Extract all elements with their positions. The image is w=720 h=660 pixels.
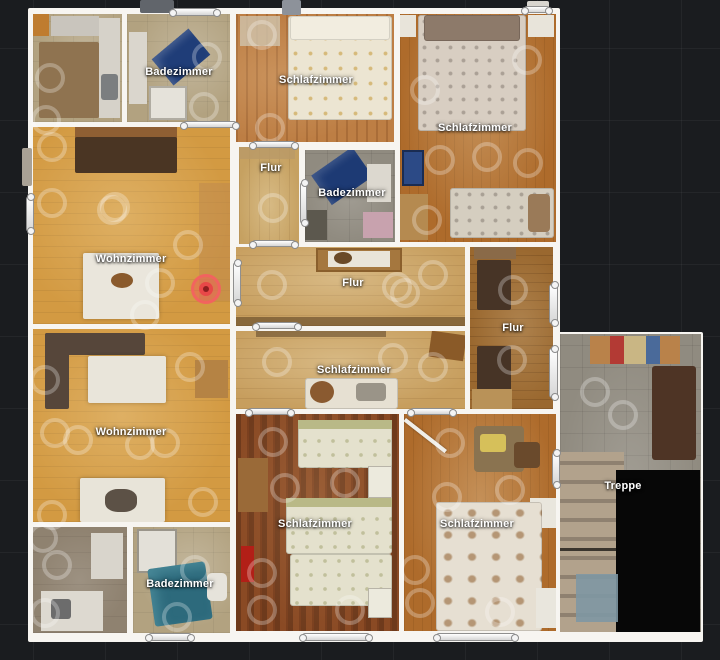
- sweep-point[interactable]: [28, 523, 58, 553]
- sweep-point[interactable]: [130, 300, 160, 330]
- sweep-point[interactable]: [258, 427, 288, 457]
- sweep-point[interactable]: [188, 487, 218, 517]
- nightstand: [368, 588, 392, 618]
- door-hinge: [249, 241, 257, 249]
- sweep-point[interactable]: [390, 278, 420, 308]
- sweep-point[interactable]: [97, 195, 127, 225]
- door-hinge: [291, 241, 299, 249]
- nightstand: [400, 15, 416, 37]
- door-marker: [410, 408, 454, 415]
- current-position-marker: [191, 274, 221, 304]
- room-label: Badezimmer: [146, 578, 213, 590]
- door-marker: [549, 348, 558, 398]
- sweep-point[interactable]: [162, 602, 192, 632]
- sweep-point[interactable]: [175, 352, 205, 382]
- door-marker: [248, 408, 292, 415]
- sweep-point[interactable]: [425, 145, 455, 175]
- sweep-point[interactable]: [37, 132, 67, 162]
- clutter: [472, 389, 512, 409]
- stair-landing-edge: [560, 548, 624, 551]
- sweep-point[interactable]: [30, 598, 60, 628]
- door-marker: [436, 633, 516, 641]
- door-hinge: [299, 634, 307, 642]
- sweep-point[interactable]: [270, 473, 300, 503]
- stairwell-void: [616, 470, 700, 632]
- cushion: [480, 434, 506, 452]
- wardrobe: [238, 458, 268, 512]
- sweep-point[interactable]: [31, 105, 61, 135]
- current-position-marker-core: [203, 286, 209, 292]
- door-hinge: [553, 481, 561, 489]
- pillow: [310, 381, 334, 403]
- sink: [101, 74, 118, 100]
- clutter: [256, 331, 386, 337]
- clutter: [474, 247, 516, 259]
- room-label: Badezimmer: [318, 187, 385, 199]
- door-hinge: [551, 281, 559, 289]
- door-hinge: [511, 634, 519, 642]
- door-marker: [524, 6, 550, 13]
- sweep-point[interactable]: [255, 113, 285, 143]
- sweep-point[interactable]: [262, 347, 292, 377]
- sweep-point[interactable]: [580, 377, 610, 407]
- door-hinge: [553, 449, 561, 457]
- sweep-point[interactable]: [410, 75, 440, 105]
- door-marker: [300, 182, 307, 224]
- door-hinge: [365, 634, 373, 642]
- sweep-point[interactable]: [512, 45, 542, 75]
- sweep-point[interactable]: [247, 20, 277, 50]
- nightstand: [368, 466, 392, 498]
- door-hinge: [213, 9, 221, 17]
- door-hinge: [232, 122, 240, 130]
- cabinet: [33, 14, 49, 36]
- door-hinge: [249, 142, 257, 150]
- room-label: Treppe: [604, 480, 641, 492]
- sweep-point[interactable]: [497, 345, 527, 375]
- door-hinge: [407, 409, 415, 417]
- door-hinge: [291, 142, 299, 150]
- table-item: [111, 273, 133, 288]
- chair: [402, 150, 424, 186]
- room-label: Schlafzimmer: [317, 364, 391, 376]
- shelf: [590, 336, 680, 364]
- sweep-point[interactable]: [30, 365, 60, 395]
- door-hinge: [521, 7, 529, 15]
- door-hinge: [145, 634, 153, 642]
- door-marker: [549, 284, 558, 324]
- door-hinge: [234, 299, 242, 307]
- sweep-point[interactable]: [145, 268, 175, 298]
- room-label: Flur: [502, 322, 524, 334]
- sweep-point[interactable]: [173, 230, 203, 260]
- door-hinge: [545, 7, 553, 15]
- sweep-point[interactable]: [247, 595, 277, 625]
- door-hinge: [27, 227, 35, 235]
- blanket: [528, 194, 550, 232]
- sweep-point[interactable]: [495, 475, 525, 505]
- floorplan-viewport: BadezimmerSchlafzimmerSchlafzimmerFlurBa…: [0, 0, 720, 660]
- sweep-point[interactable]: [63, 425, 93, 455]
- sweep-point[interactable]: [42, 550, 72, 580]
- door-hinge: [187, 634, 195, 642]
- room-label: Badezimmer: [145, 66, 212, 78]
- door-hinge: [301, 219, 309, 227]
- sofa: [75, 137, 177, 173]
- sweep-point[interactable]: [400, 555, 430, 585]
- door-marker: [172, 8, 218, 16]
- nightstand: [536, 588, 556, 628]
- mat: [576, 574, 618, 622]
- sweep-point[interactable]: [608, 400, 638, 430]
- sweep-point[interactable]: [247, 558, 277, 588]
- basket: [514, 442, 540, 468]
- shower: [149, 86, 187, 120]
- sweep-point[interactable]: [412, 205, 442, 235]
- room-label: Flur: [260, 162, 282, 174]
- door-marker: [252, 240, 296, 247]
- sweep-point[interactable]: [330, 468, 360, 498]
- door-marker: [233, 262, 241, 304]
- sweep-point[interactable]: [435, 428, 465, 458]
- room-label: Schlafzimmer: [440, 518, 514, 530]
- sideboard-item: [105, 489, 137, 512]
- sweep-point[interactable]: [485, 597, 515, 627]
- door-marker: [252, 141, 296, 148]
- clutter: [239, 147, 295, 159]
- blanket-edge: [298, 420, 392, 429]
- sweep-point[interactable]: [418, 260, 448, 290]
- door-marker: [302, 633, 370, 641]
- door-hinge: [551, 393, 559, 401]
- nightstand: [528, 15, 554, 37]
- sweep-point[interactable]: [405, 588, 435, 618]
- sofa: [652, 366, 696, 460]
- sweep-point[interactable]: [513, 148, 543, 178]
- door-hinge: [551, 345, 559, 353]
- appliance: [91, 533, 123, 579]
- laundry-basket: [363, 212, 393, 238]
- sweep-point[interactable]: [257, 270, 287, 300]
- door-marker: [26, 196, 34, 232]
- bench-item: [334, 252, 352, 264]
- door-hinge: [287, 409, 295, 417]
- sweep-point[interactable]: [35, 63, 65, 93]
- blanket-edge: [286, 498, 392, 507]
- blanket: [356, 383, 386, 401]
- door-hinge: [433, 634, 441, 642]
- door-hinge: [294, 323, 302, 331]
- pillow: [424, 15, 520, 41]
- sweep-point[interactable]: [37, 188, 67, 218]
- sweep-point[interactable]: [498, 275, 528, 305]
- scan-artifact: [282, 0, 301, 15]
- sweep-point[interactable]: [335, 595, 365, 625]
- room-label: Schlafzimmer: [438, 122, 512, 134]
- door-marker: [183, 121, 237, 128]
- room-label: Schlafzimmer: [279, 74, 353, 86]
- room-label: Flur: [342, 277, 364, 289]
- door-marker: [552, 452, 560, 486]
- sweep-point[interactable]: [472, 142, 502, 172]
- door-hinge: [301, 179, 309, 187]
- kitchen-counter: [99, 18, 120, 118]
- door-hinge: [551, 319, 559, 327]
- sweep-point[interactable]: [258, 193, 288, 223]
- door-hinge: [234, 259, 242, 267]
- door-hinge: [245, 409, 253, 417]
- sweep-point[interactable]: [418, 352, 448, 382]
- door-hinge: [449, 409, 457, 417]
- table: [88, 356, 166, 403]
- door-hinge: [27, 193, 35, 201]
- room-label: Wohnzimmer: [96, 253, 167, 265]
- door-marker: [255, 322, 299, 329]
- door-hinge: [252, 323, 260, 331]
- sweep-point[interactable]: [432, 482, 462, 512]
- sweep-point[interactable]: [189, 92, 219, 122]
- door-hinge: [180, 122, 188, 130]
- room-label: Schlafzimmer: [278, 518, 352, 530]
- pillow: [290, 16, 390, 40]
- room-label: Wohnzimmer: [96, 426, 167, 438]
- door-hinge: [169, 9, 177, 17]
- scan-artifact: [22, 148, 32, 186]
- kitchen-counter: [51, 16, 99, 36]
- door-marker: [148, 633, 192, 641]
